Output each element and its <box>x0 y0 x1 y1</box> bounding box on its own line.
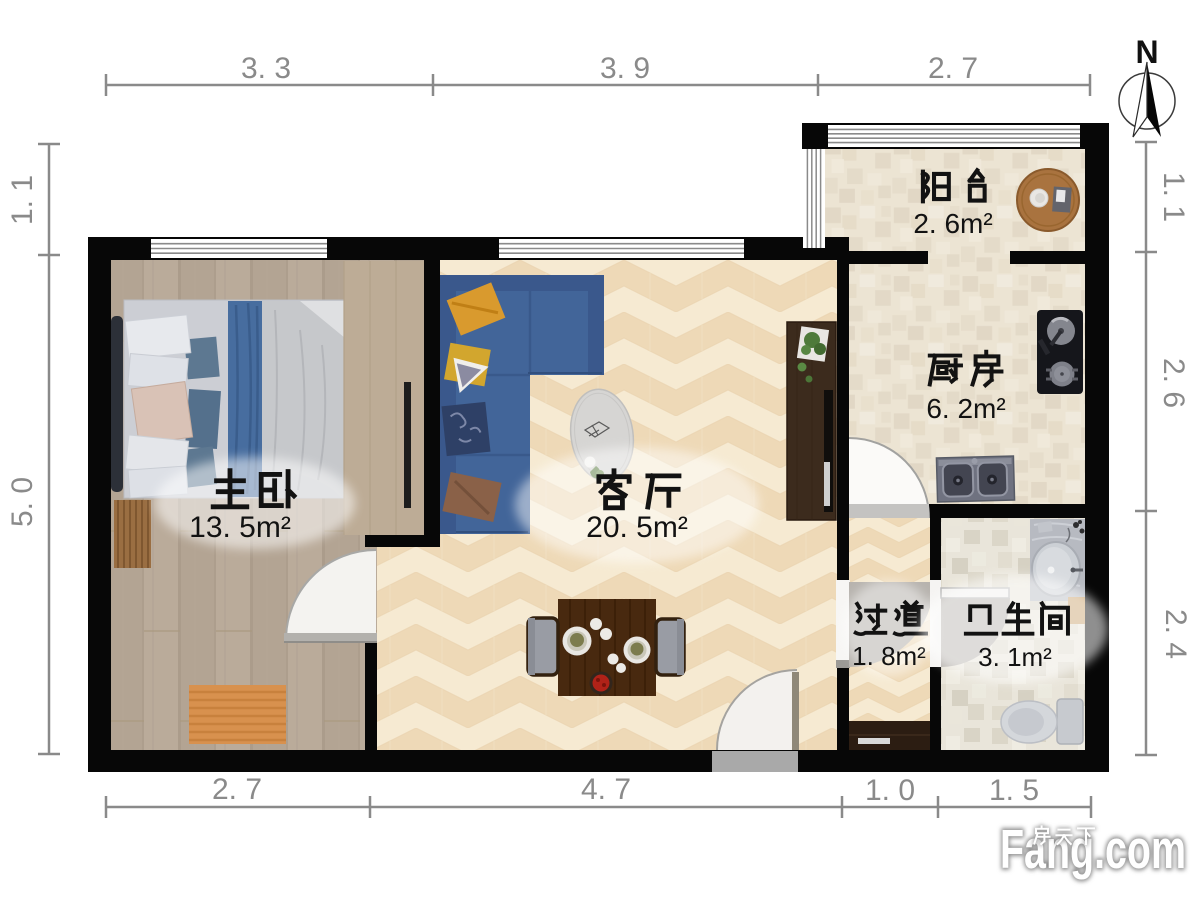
svg-text:3. 3: 3. 3 <box>241 52 291 85</box>
svg-text:2. 7: 2. 7 <box>212 773 262 806</box>
svg-text:13. 5m²: 13. 5m² <box>189 511 291 544</box>
svg-text:1. 5: 1. 5 <box>989 774 1039 807</box>
svg-text:6. 2m²: 6. 2m² <box>926 393 1005 424</box>
svg-text:3. 1m²: 3. 1m² <box>978 642 1052 672</box>
svg-text:1. 0: 1. 0 <box>865 774 915 807</box>
svg-text:3. 9: 3. 9 <box>600 52 650 85</box>
svg-text:2. 6: 2. 6 <box>1157 358 1190 408</box>
svg-text:1. 8m²: 1. 8m² <box>852 641 926 671</box>
svg-text:2. 6m²: 2. 6m² <box>913 208 992 239</box>
svg-text:1. 1: 1. 1 <box>6 175 39 225</box>
svg-text:4. 7: 4. 7 <box>581 773 631 806</box>
svg-text:2. 4: 2. 4 <box>1159 609 1192 659</box>
svg-text:1. 1: 1. 1 <box>1157 172 1190 222</box>
svg-text:2. 7: 2. 7 <box>928 52 978 85</box>
svg-text:20. 5m²: 20. 5m² <box>586 511 688 544</box>
svg-text:5. 0: 5. 0 <box>6 477 39 527</box>
